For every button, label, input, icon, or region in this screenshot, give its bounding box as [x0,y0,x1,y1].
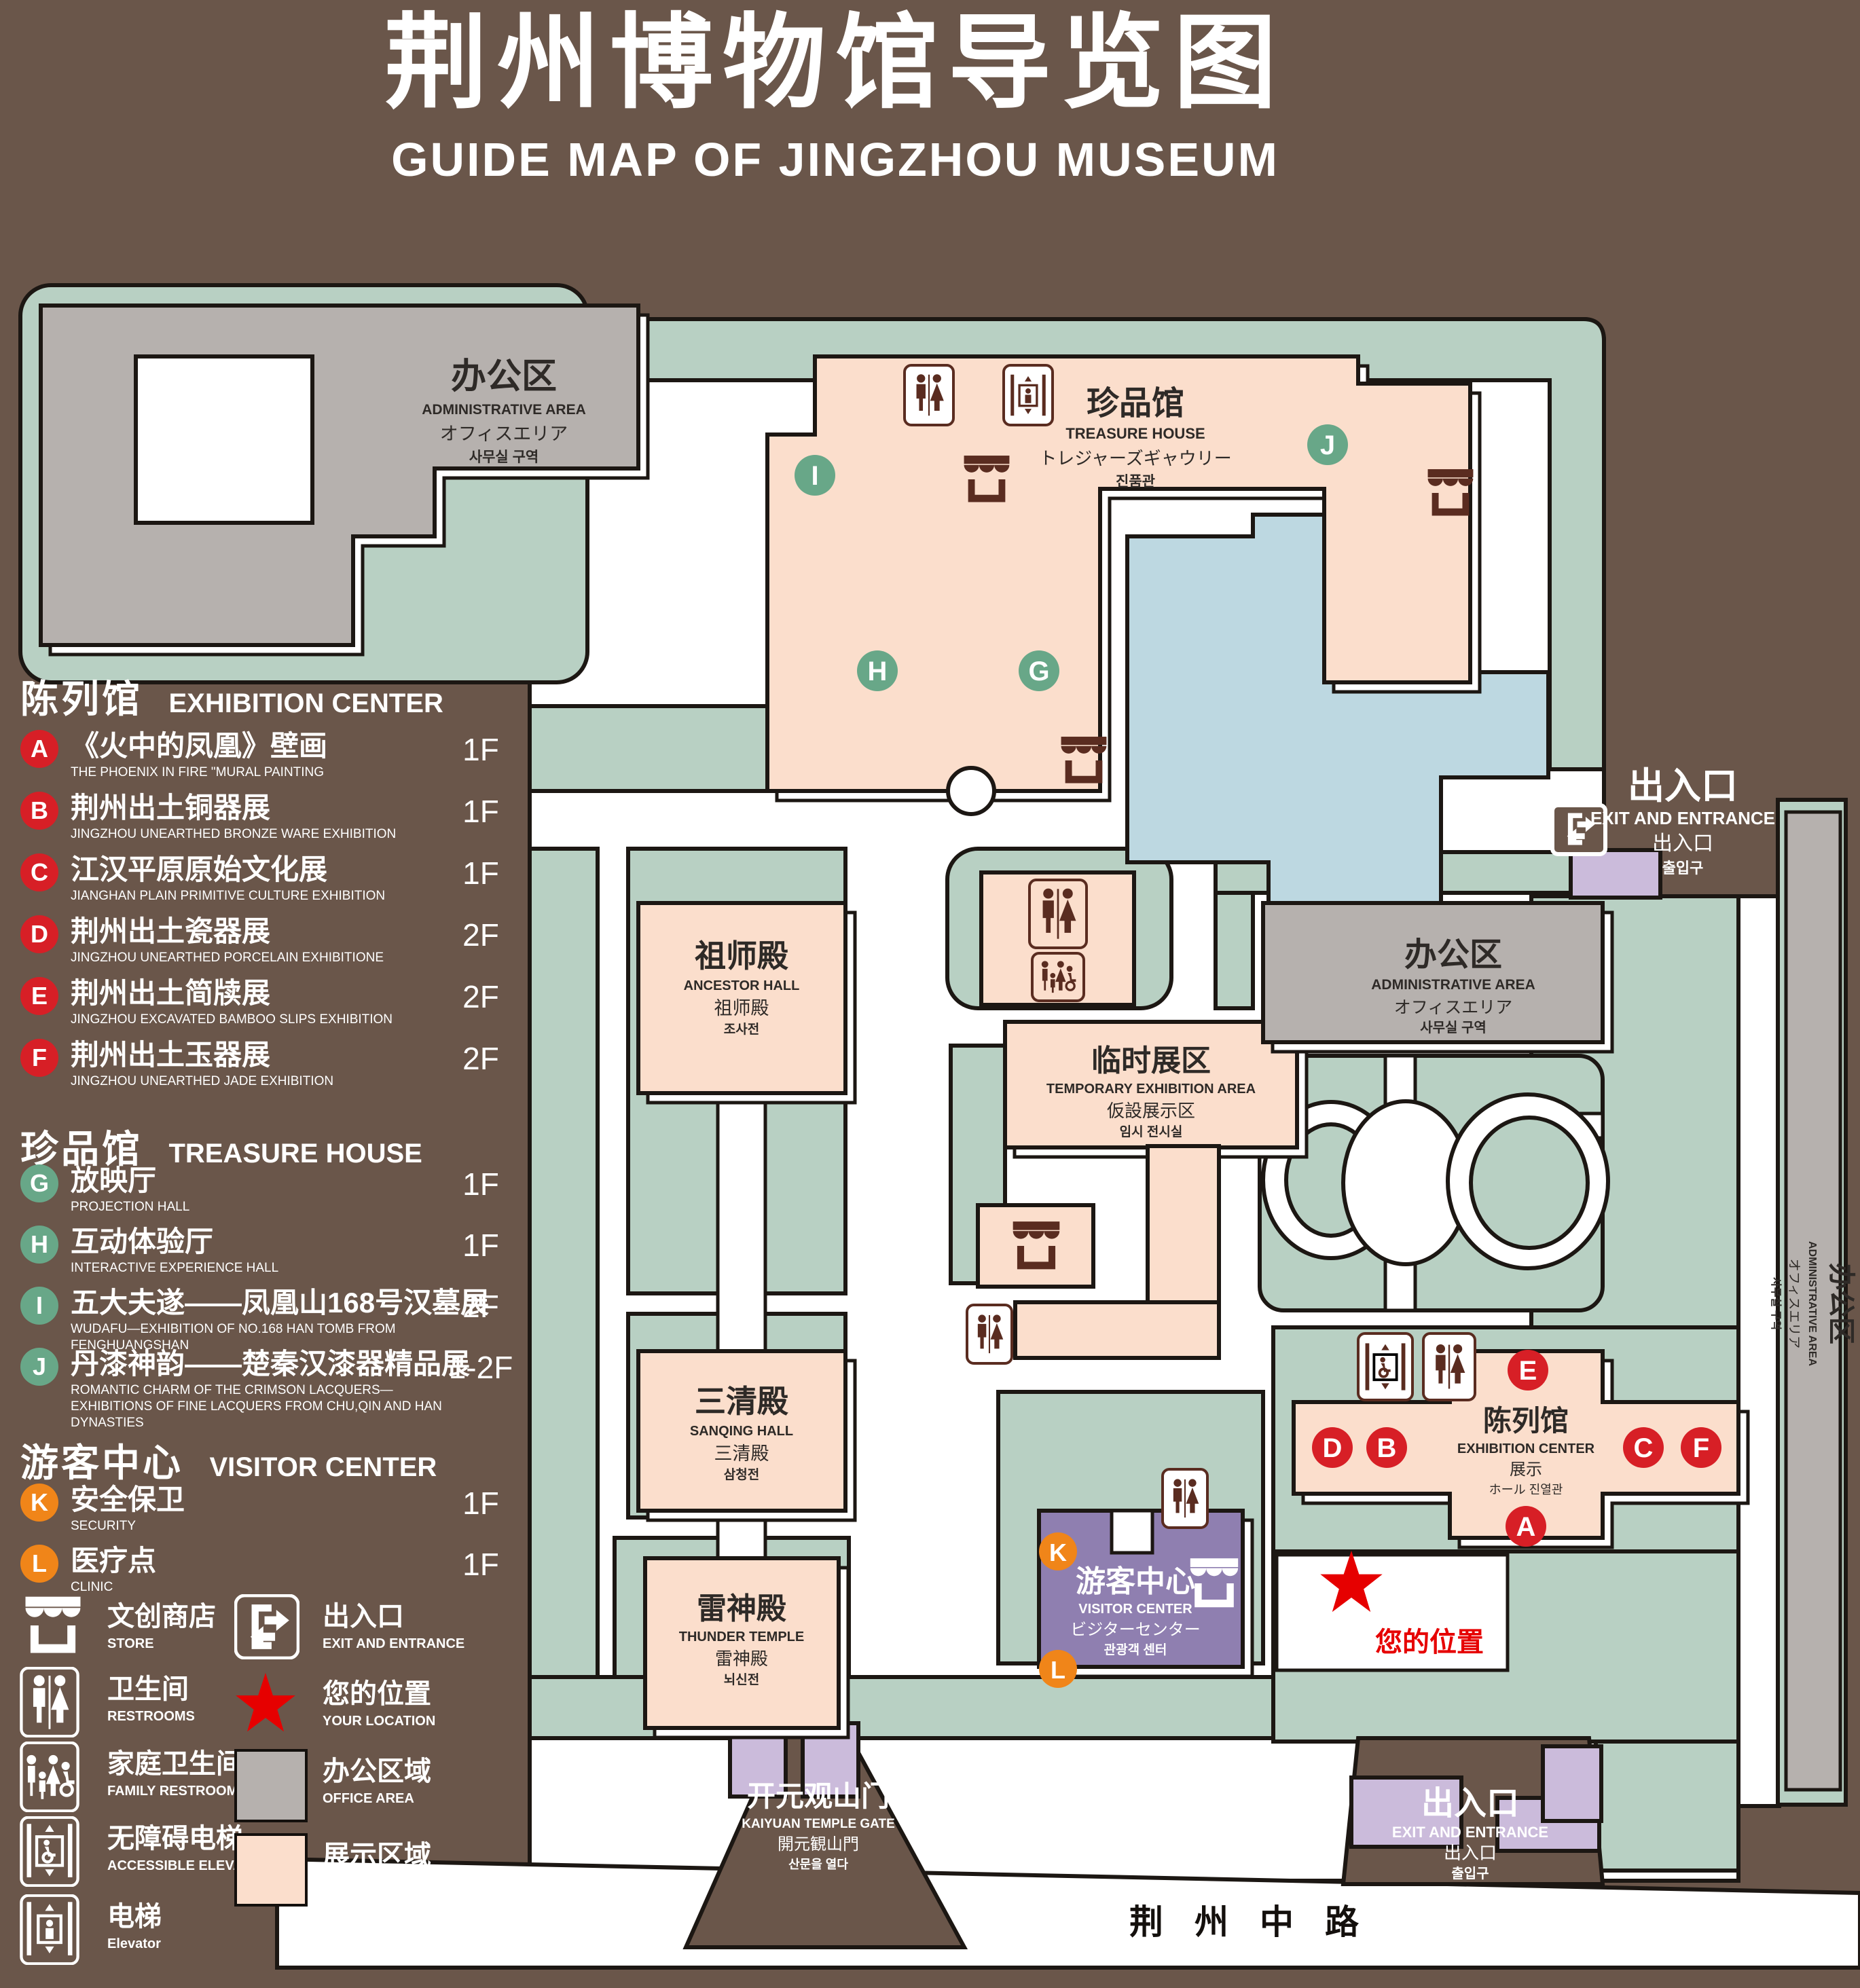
marker-badge-F: F [20,1039,58,1077]
exit-bottom-en: EXIT AND ENTRANCE [1392,1824,1548,1841]
visitor-en: VISITOR CENTER [1078,1602,1192,1617]
accessible-elevator-icon [19,1816,80,1887]
item-floor: 1F [440,1546,522,1583]
symbol-zh: 您的位置 [323,1672,435,1711]
item-name-en: JINGZHOU EXCAVATED BAMBOO SLIPS EXHIBITI… [71,1012,451,1028]
marker-D: D [1323,1433,1343,1463]
marker-L: L [1051,1656,1065,1684]
treasure-arc-detail [948,768,994,814]
exit-entrance-icon [234,1594,299,1659]
legend-item-J: J 丹漆神韵——楚秦汉漆器精品展 ROMANTIC CHARM OF THE C… [20,1348,523,1431]
legend-item-F: F 荆州出土玉器展 JINGZHOU UNEARTHED JADE EXHIBI… [20,1039,523,1090]
exit-bottom-zh: 出入口 [1421,1786,1519,1822]
temp-building-column [1148,1146,1219,1304]
admin-tl-courtyard [136,356,312,523]
admin-strip-ko: 사무실 구역 [1770,1277,1782,1330]
item-name-en: SECURITY [71,1518,451,1534]
temp-store-block [978,1205,1093,1287]
admin-strip-zh: 办公区 [1826,1263,1856,1344]
treasure-ko: 진품관 [1116,474,1155,490]
symbol-en: EXIT AND ENTRANCE [323,1636,464,1652]
legend-symbol-your-location: 您的位置 YOUR LOCATION [234,1672,435,1729]
legend-symbol-elevator: 电梯 Elevator [19,1894,162,1952]
item-floor: 2F [440,978,522,1015]
item-floor: 2F [440,917,522,953]
admin-strip-ja: オフィスエリア [1787,1259,1801,1349]
symbol-en: YOUR LOCATION [323,1714,435,1729]
marker-badge-E: E [20,977,58,1015]
marker-badge-A: A [20,730,58,768]
symbol-en: DISPLAY AREA [323,1875,431,1891]
admin-strip-en: ADMINISTRATIVE AREA [1806,1241,1818,1366]
ancestor-ja: 祖师殿 [714,998,769,1018]
symbol-zh: 出入口 [323,1594,464,1634]
temp-zh: 临时展区 [1091,1044,1211,1078]
marker-badge-I: I [20,1287,58,1325]
treasure-zh: 珍品馆 [1087,386,1184,422]
path-ancestor [718,1093,765,1351]
exit-bottom-zh2: 出入口 [1444,1843,1497,1863]
symbol-zh: 卫生间 [107,1667,195,1706]
symbol-en: FAMILY RESTROOMS [107,1784,247,1799]
visitor-ko: 관광객 센터 [1104,1642,1167,1657]
admin-tl-en: ADMINISTRATIVE AREA [422,402,586,418]
item-floor: 1F [440,1485,522,1522]
section-title-zh: 游客中心 [20,1441,183,1484]
temp-restroom-icon [967,1305,1012,1363]
visitor-zh: 游客中心 [1076,1565,1195,1598]
visitor-notch [1112,1511,1152,1553]
legend-symbol-office-area: 办公区域 OFFICE AREA [234,1749,431,1807]
item-floor: 1F [440,1227,522,1264]
item-name-en: INTERACTIVE EXPERIENCE HALL [71,1260,451,1276]
legend-item-E: E 荆州出土简牍展 JINGZHOU EXCAVATED BAMBOO SLIP… [20,977,523,1028]
symbol-zh: 办公区域 [323,1749,431,1788]
sanqing-zh: 三清殿 [695,1384,788,1419]
symbol-zh: 电梯 [107,1894,162,1934]
item-floor: 1-2F [440,1349,522,1386]
legend-symbol-store: 文创商店 STORE [19,1594,216,1652]
item-floor: 1F [440,731,522,768]
item-name-en: JIANGHAN PLAIN PRIMITIVE CULTURE EXHIBIT… [71,888,451,904]
marker-badge-D: D [20,915,58,953]
elevator-icon [19,1894,80,1965]
marker-badge-J: J [20,1348,58,1386]
your-location-label: 您的位置 [1375,1627,1484,1657]
marker-K: K [1049,1539,1067,1566]
treasure-en: TREASURE HOUSE [1065,425,1205,442]
symbol-zh: 文创商店 [107,1594,216,1634]
legend-item-D: D 荆州出土瓷器展 JINGZHOU UNEARTHED PORCELAIN E… [20,915,523,966]
admin-r-ko: 사무실 구역 [1420,1020,1487,1035]
symbol-en: OFFICE AREA [323,1791,431,1807]
legend-symbol-family-restrooms: 家庭卫生间 FAMILY RESTROOMS [19,1742,247,1799]
section-title-zh: 陈列馆 [20,678,143,720]
treasure-ja: トレジャーズギャウリー [1039,448,1231,468]
exhibition-zh: 陈列馆 [1483,1405,1569,1437]
your-location-star-icon [234,1672,297,1734]
legend-symbol-display-area: 展示区域 DISPLAY AREA [234,1833,431,1891]
green-band-left [530,706,767,791]
marker-J: J [1320,430,1335,460]
symbol-en: RESTROOMS [107,1709,195,1725]
legend-symbol-restrooms: 卫生间 RESTROOMS [19,1667,195,1725]
legend-item-H: H 互动体验厅 INTERACTIVE EXPERIENCE HALL 1F [20,1226,523,1276]
item-floor: 1F [440,855,522,891]
legend-item-A: A 《火中的凤凰》壁画 THE PHOENIX IN FIRE "MURAL P… [20,730,523,781]
exit-right-zh: 出入口 [1628,766,1738,807]
item-name-en: THE PHOENIX IN FIRE "MURAL PAINTING [71,765,451,781]
symbol-en: Elevator [107,1936,162,1952]
admin-r-ja: オフィスエリア [1394,998,1513,1017]
marker-A: A [1516,1512,1536,1542]
item-name-en: ROMANTIC CHARM OF THE CRIMSON LACQUERS—E… [71,1382,451,1431]
family-restroom-icon [19,1742,80,1812]
right-exit-building [1571,850,1660,898]
marker-H: H [868,657,888,686]
marker-badge-H: H [20,1226,58,1264]
sanqing-ko: 삼청전 [724,1467,759,1482]
item-name-en: JINGZHOU UNEARTHED BRONZE WARE EXHIBITIO… [71,826,451,843]
gate-zh: 开元观山门 [747,1780,890,1812]
exhibition-mix: ホール 진열관 [1489,1483,1563,1496]
marker-badge-K: K [20,1484,58,1522]
green-left-strip [530,849,598,1738]
exit-bottom-ko: 출입구 [1451,1866,1489,1881]
gate-en: KAIYUAN TEMPLE GATE [742,1817,895,1831]
legend-section-exhibition: 陈列馆 EXHIBITION CENTER [20,669,443,724]
guide-map-page: 荆州博物馆导览图 GUIDE MAP OF JINGZHOU MUSEUM [0,0,1860,1988]
admin-tl-zh: 办公区 [451,357,557,397]
exhibition-zh2: 展示 [1510,1460,1542,1479]
temp-ja: 仮設展示区 [1107,1101,1195,1121]
marker-badge-L: L [20,1545,58,1583]
sanqing-ja: 三清殿 [714,1443,769,1464]
exit-right-en: EXIT AND ENTRANCE [1590,808,1775,828]
visitor-ja: ビジターセンター [1070,1621,1201,1639]
office-area-swatch [234,1749,308,1822]
green-bottom-right [1596,1742,1738,1871]
thunder-ja: 雷神殿 [715,1649,768,1669]
gate-ko: 산문을 열다 [788,1858,848,1871]
thunder-zh: 雷神殿 [697,1592,786,1625]
legend-symbol-exit: 出入口 EXIT AND ENTRANCE [234,1594,464,1652]
marker-badge-G: G [20,1164,58,1202]
sanqing-en: SANQING HALL [690,1424,793,1439]
legend-section-visitor: 游客中心 VISITOR CENTER [20,1433,437,1488]
marker-I: I [811,461,818,491]
thunder-ko: 뇌신전 [724,1672,759,1687]
gate-ja: 開元観山門 [778,1835,859,1854]
marker-badge-B: B [20,792,58,830]
item-name-en: CLINIC [71,1579,451,1596]
marker-E: E [1519,1356,1537,1386]
symbol-zh: 家庭卫生间 [107,1742,247,1781]
legend-item-C: C 江汉平原原始文化展 JIANGHAN PLAIN PRIMITIVE CUL… [20,853,523,904]
admin-r-zh: 办公区 [1404,937,1502,973]
item-name-en: JINGZHOU UNEARTHED PORCELAIN EXHIBITIONE [71,950,451,966]
green-bar-admin-leg [1216,893,1253,1008]
ancestor-ko: 조사전 [724,1022,759,1037]
legend-item-B: B 荆州出土铜器展 JINGZHOU UNEARTHED BRONZE WARE… [20,792,523,843]
temp-ko: 임시 전시실 [1120,1124,1183,1139]
symbol-en: STORE [107,1636,216,1652]
restroom-icon [19,1667,80,1737]
exit-right-zh2: 出入口 [1652,832,1713,855]
symbol-zh: 展示区域 [323,1833,431,1873]
marker-C: C [1634,1433,1654,1463]
admin-tl-ko: 사무실 구역 [469,449,539,465]
legend-item-K: K 安全保卫 SECURITY 1F [20,1484,523,1534]
item-floor: 2F [440,1288,522,1325]
legend-item-L: L 医疗点 CLINIC 1F [20,1545,523,1596]
exit-right-ko: 출입구 [1662,860,1704,877]
exhibition-en: EXHIBITION CENTER [1457,1441,1595,1456]
legend-item-I: I 五大夫遂——凤凰山168号汉墓展 WUDAFU—EXHIBITION OF … [20,1287,523,1354]
temp-en: TEMPORARY EXHIBITION AREA [1046,1082,1256,1097]
ancestor-zh: 祖师殿 [695,938,788,974]
admin-tl-ja: オフィスエリア [440,424,568,444]
bottom-exit-building-right2 [1543,1746,1601,1821]
section-title-en: EXHIBITION CENTER [168,688,443,718]
item-name-en: JINGZHOU UNEARTHED JADE EXHIBITION [71,1073,451,1090]
item-name-en: PROJECTION HALL [71,1199,451,1215]
marker-badge-C: C [20,853,58,891]
road-label: 荆州中路 [1129,1903,1390,1941]
marker-B: B [1377,1433,1397,1463]
store-icon [19,1594,87,1657]
display-area-swatch [234,1833,308,1907]
ancestor-en: ANCESTOR HALL [684,978,800,993]
section-title-en: VISITOR CENTER [209,1452,437,1482]
admin-r-en: ADMINISTRATIVE AREA [1371,977,1535,993]
marker-F: F [1693,1433,1709,1463]
legend-item-G: G 放映厅 PROJECTION HALL 1F [20,1164,523,1215]
item-floor: 2F [440,1040,522,1077]
item-floor: 1F [440,1166,522,1202]
marker-G: G [1028,657,1049,686]
legend-symbol-accessible-elevator: 无障碍电梯 ACCESSIBLE ELEVATOR [19,1816,270,1874]
restroom-block-icons [1029,880,1087,1001]
temp-building-arm [1015,1302,1219,1358]
thunder-en: THUNDER TEMPLE [679,1630,804,1644]
item-floor: 1F [440,793,522,830]
